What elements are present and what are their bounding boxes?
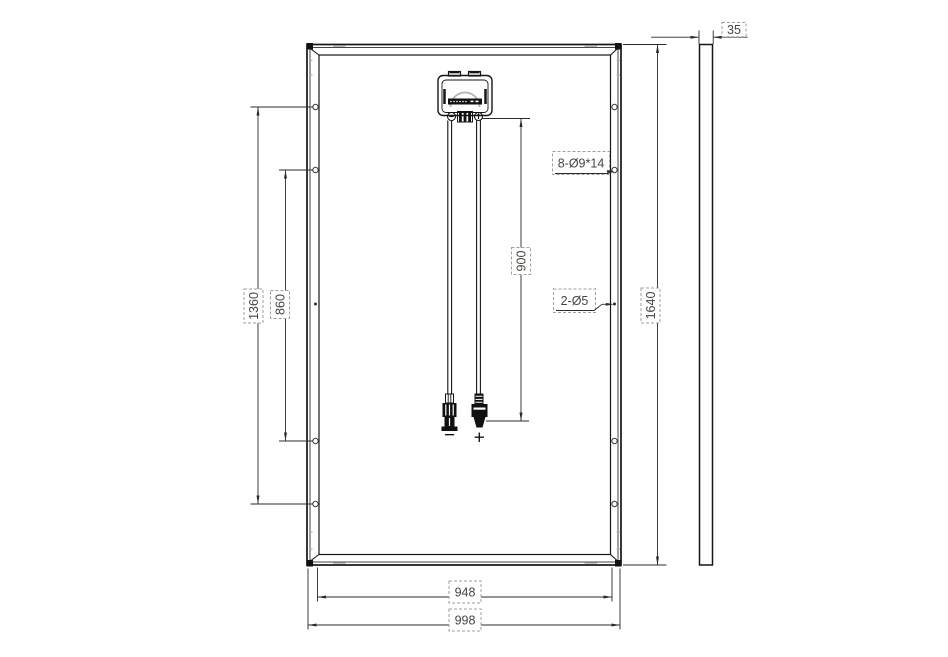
- mounting-holes-label: 8-Ø9*14: [558, 156, 605, 170]
- dim-label-948: 948: [455, 585, 476, 599]
- dim-label-900: 900: [514, 251, 528, 272]
- dimension-cable-length: 900: [483, 119, 531, 422]
- terminal-strip: [448, 99, 482, 105]
- cable-negative: [448, 121, 452, 395]
- cable-positive: [477, 121, 481, 394]
- connector-positive: [472, 394, 488, 428]
- side-profile-view: [700, 45, 713, 566]
- dim-label-1640: 1640: [644, 292, 658, 320]
- callout-mounting-holes: 8-Ø9*14: [553, 152, 615, 175]
- dimension-panel-thickness: 35: [651, 23, 748, 45]
- technical-drawing-canvas: − + 1360 860 900 1640: [0, 0, 948, 657]
- dim-label-35: 35: [727, 23, 741, 37]
- dim-label-998: 998: [455, 613, 476, 627]
- dimension-inner-width: 948: [318, 568, 613, 604]
- callout-grounding-holes: 2-Ø5: [554, 289, 614, 313]
- dimension-outer-height: 1640: [623, 45, 667, 566]
- negative-polarity-label: −: [444, 425, 455, 446]
- jb-positive-terminal: [475, 113, 483, 121]
- drawing-page: − + 1360 860 900 1640: [0, 0, 948, 657]
- junction-box: [438, 72, 492, 123]
- grounding-holes-label: 2-Ø5: [561, 294, 589, 308]
- positive-polarity-label: +: [474, 428, 485, 449]
- jb-negative-terminal: [448, 113, 456, 121]
- dim-label-860: 860: [273, 294, 287, 315]
- dim-label-1360: 1360: [247, 292, 261, 320]
- cable-gland-block: [458, 112, 473, 123]
